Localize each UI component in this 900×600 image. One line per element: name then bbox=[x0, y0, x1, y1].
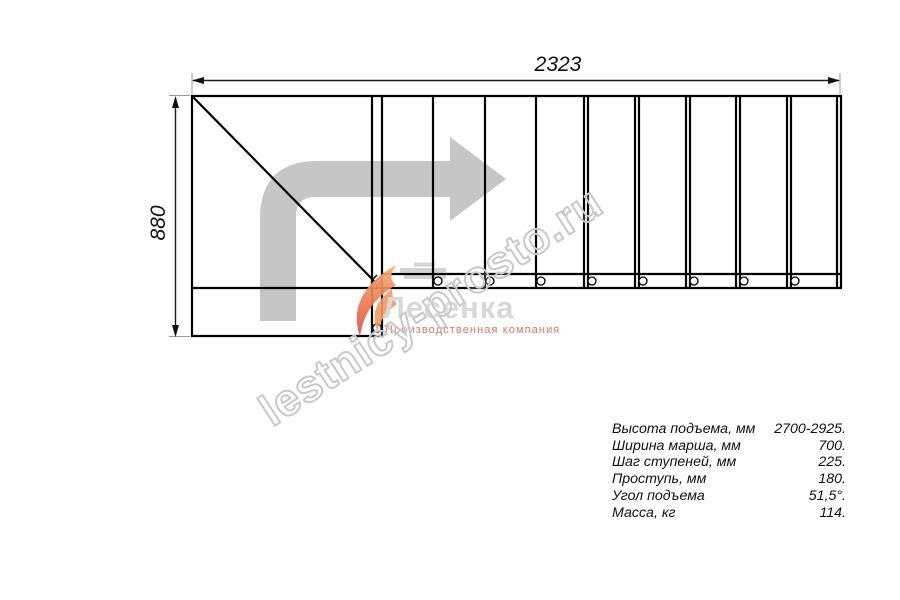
spec-label: Угол подъема bbox=[612, 488, 705, 505]
spec-row: Масса, кг 114. bbox=[612, 505, 846, 522]
spec-value: 51,5°. bbox=[809, 488, 846, 505]
dimension-width-label: 2323 bbox=[498, 53, 618, 77]
spec-value: 2700-2925. bbox=[774, 421, 846, 438]
spec-label: Высота подъема, мм bbox=[612, 421, 755, 438]
spec-row: Ширина марша, мм 700. bbox=[612, 438, 846, 455]
spec-value: 114. bbox=[819, 505, 846, 522]
dimension-height-label: 880 bbox=[136, 200, 182, 246]
spec-label: Шаг ступеней, мм bbox=[612, 454, 736, 471]
spec-row: Высота подъема, мм 2700-2925. bbox=[612, 421, 846, 438]
spec-value: 180. bbox=[818, 471, 846, 488]
spec-row: Проступь, мм 180. bbox=[612, 471, 846, 488]
spec-value: 225. bbox=[818, 454, 846, 471]
spec-label: Масса, кг bbox=[612, 505, 676, 522]
spec-label: Проступь, мм bbox=[612, 471, 706, 488]
spec-value: 700. bbox=[818, 438, 846, 455]
spec-row: Шаг ступеней, мм 225. bbox=[612, 454, 846, 471]
specs-table: Высота подъема, мм 2700-2925. Ширина мар… bbox=[612, 421, 846, 521]
spec-row: Угол подъема 51,5°. bbox=[612, 488, 846, 505]
spec-label: Ширина марша, мм bbox=[612, 438, 741, 455]
staircase-plan-drawing: 2323 880 Лесенка Производственная компан… bbox=[0, 0, 900, 600]
